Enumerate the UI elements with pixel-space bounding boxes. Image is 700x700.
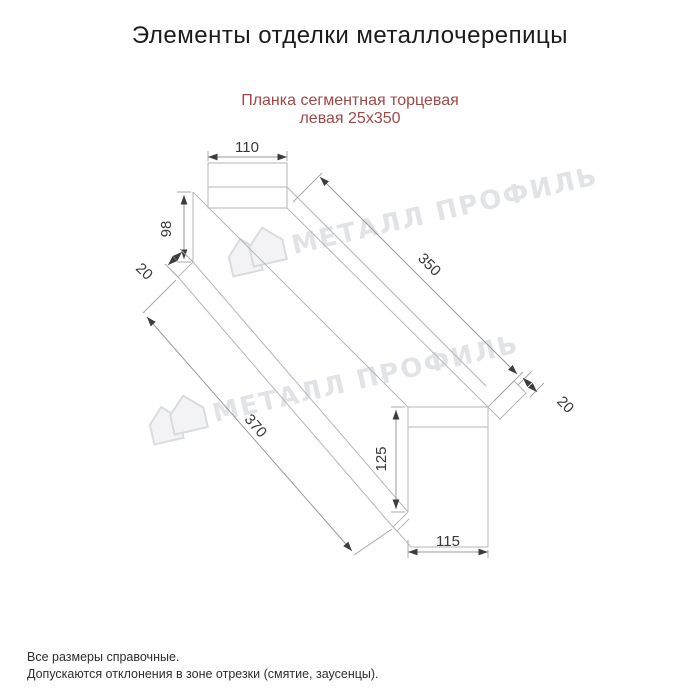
watermark-house-icon bbox=[167, 392, 208, 435]
catalog-page: Элементы отделки металлочерепицы Планка … bbox=[0, 0, 700, 700]
footnote-line1: Все размеры справочные. bbox=[27, 649, 379, 666]
watermark-logo-upper: МЕТАЛЛ ПРОФИЛЬ bbox=[224, 152, 601, 277]
watermark-house-icon bbox=[246, 224, 287, 267]
dim-bottom-width-label: 115 bbox=[436, 533, 460, 550]
footnote-line2: Допускаются отклонения в зоне отрезки (с… bbox=[27, 666, 379, 683]
watermark-text: МЕТАЛЛ ПРОФИЛЬ bbox=[289, 161, 601, 261]
dim-right-flap-label: 20 bbox=[553, 393, 577, 417]
dim-left-flap-label: 20 bbox=[132, 260, 156, 284]
technical-drawing: МЕТАЛЛ ПРОФИЛЬ МЕТАЛЛ ПРОФИЛЬ bbox=[0, 0, 700, 700]
dim-right-height-label: 125 bbox=[373, 446, 390, 471]
dim-top-width-label: 110 bbox=[235, 139, 259, 156]
footnotes: Все размеры справочные. Допускаются откл… bbox=[27, 649, 379, 683]
dim-left-height-label: 98 bbox=[158, 221, 175, 238]
